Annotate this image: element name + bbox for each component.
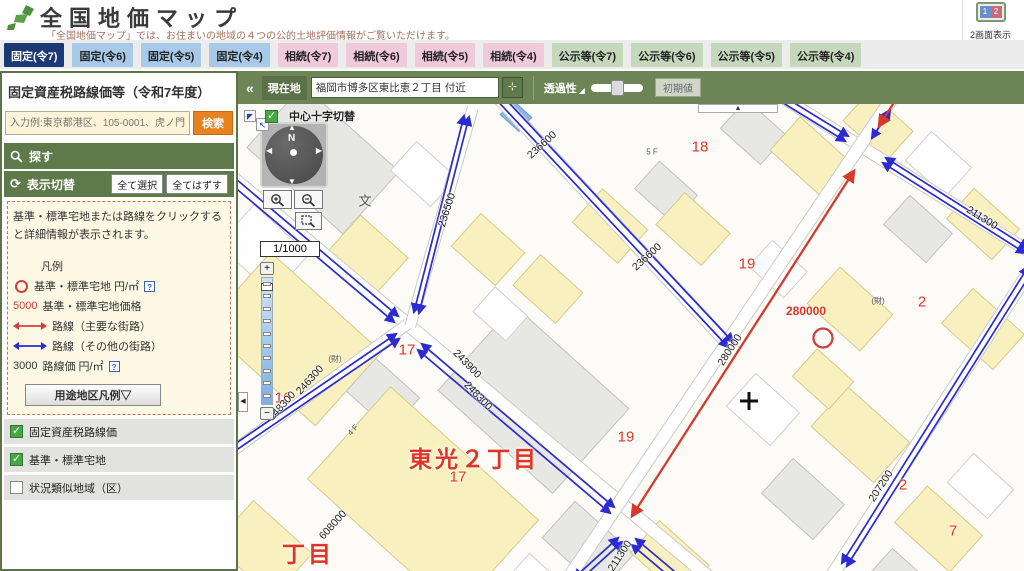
opacity-slider[interactable]	[591, 84, 643, 92]
district-number-label: 2	[918, 294, 926, 311]
opacity-reset-button[interactable]: 初期値	[655, 78, 701, 97]
current-location-label: 現在地	[262, 76, 307, 100]
toolbar-collapse-handle[interactable]: ▲	[698, 104, 778, 113]
layer-row: 固定資産税路線価	[4, 419, 234, 444]
dual-view-button[interactable]: 12 2画面表示	[962, 0, 1018, 40]
map-toolbar: « 現在地 ⊹ 透過性 ◢ 初期値	[238, 71, 1024, 104]
center-crosshair-label: 中心十字切替	[289, 108, 355, 124]
find-section-header[interactable]: 探す	[4, 143, 234, 169]
building-block	[946, 453, 1014, 520]
display-toggle-section-header: ⟳ 表示切替 全て選択 全てはずす	[4, 171, 234, 197]
legend-item: 路線（主要な街路）	[13, 318, 225, 334]
search-icon	[10, 150, 23, 163]
legend-title: 凡例	[41, 258, 225, 274]
district-number-label: 19	[739, 256, 756, 273]
tab-公示等(令4)[interactable]: 公示等(令4)	[790, 43, 861, 67]
zoom-in-button[interactable]	[263, 190, 292, 209]
standard-lot-marker	[814, 329, 833, 348]
opacity-triangle-icon: ◢	[579, 86, 585, 95]
zoom-slider-tick[interactable]	[263, 319, 271, 323]
tab-固定(令7)[interactable]: 固定(令7)	[4, 43, 64, 67]
toolbar-divider	[533, 76, 534, 100]
land-price-label: 280000	[786, 304, 826, 318]
tab-公示等(令7)[interactable]: 公示等(令7)	[552, 43, 623, 67]
tab-固定(令5)[interactable]: 固定(令5)	[141, 43, 201, 67]
poi-label: 5 F	[646, 148, 658, 157]
zoom-slider-track[interactable]	[261, 277, 273, 405]
tab-相続(令5)[interactable]: 相続(令5)	[415, 43, 475, 67]
layer-checkbox-固定資産税路線価[interactable]	[10, 425, 23, 438]
sidebar-panel: 固定資産税路線価等（令和7年度） 検索 探す ⟳ 表示切替 全て選択 全てはずす…	[0, 71, 238, 571]
zoom-slider-tick[interactable]	[263, 307, 271, 311]
layer-checkbox-基準・標準宅地[interactable]	[10, 453, 23, 466]
red-arrow-legend-icon	[13, 321, 47, 331]
usage-district-legend-button[interactable]: 用途地区凡例▽	[25, 384, 161, 406]
district-number-label: 2	[899, 477, 907, 494]
tab-固定(令4)[interactable]: 固定(令4)	[209, 43, 269, 67]
zoom-slider-tick[interactable]	[263, 369, 271, 373]
opacity-label: 透過性	[544, 80, 577, 96]
help-icon[interactable]: ?	[109, 361, 120, 372]
layer-row: 基準・標準宅地	[4, 447, 234, 472]
pan-nw-icon[interactable]: ◤	[244, 110, 256, 122]
tab-固定(令6)[interactable]: 固定(令6)	[72, 43, 132, 67]
dual-screen-icon: 12	[976, 2, 1006, 22]
area-name-label: 東光２丁目	[409, 440, 539, 474]
site-header: 全国地価マップ 「全国地価マップ」では、お住まいの地域の４つの公的土地評価情報が…	[0, 0, 1024, 40]
current-location-input[interactable]	[311, 77, 499, 98]
center-crosshair-checkbox[interactable]	[265, 110, 278, 123]
layer-checkbox-状況類似地域（区）[interactable]	[10, 481, 23, 494]
legend-item: 5000基準・標準宅地価格	[13, 298, 225, 314]
zoom-slider-tick[interactable]	[263, 332, 271, 336]
layer-row: 状況類似地域（区）	[4, 475, 234, 500]
zoom-slider-tick[interactable]	[263, 344, 271, 348]
legend-item: 基準・標準宅地 円/㎡?	[13, 278, 225, 294]
zoom-slider: + −	[260, 262, 274, 420]
help-icon[interactable]: ?	[144, 281, 155, 292]
tab-相続(令4)[interactable]: 相続(令4)	[483, 43, 543, 67]
pan-north-arrow[interactable]: ▲	[288, 123, 296, 132]
recenter-target-button[interactable]: ⊹	[502, 77, 523, 98]
refresh-icon: ⟳	[10, 176, 21, 192]
district-number-label: 18	[692, 139, 709, 156]
zoom-slider-plus-button[interactable]: +	[260, 262, 274, 275]
district-number-label: 7	[949, 523, 957, 540]
legend-box: 基準・標準宅地または路線をクリックすると詳細情報が表示されます。 凡例 基準・標…	[7, 201, 231, 415]
tab-相続(令6)[interactable]: 相続(令6)	[346, 43, 406, 67]
panel-collapse-handle[interactable]: ◀	[238, 392, 248, 412]
legend-item: 3000路線価 円/㎡?	[13, 358, 225, 374]
opacity-slider-thumb[interactable]	[611, 80, 624, 96]
building-block	[726, 372, 801, 446]
pan-east-arrow[interactable]: ▶	[316, 146, 322, 155]
district-number-label: 19	[618, 429, 635, 446]
zoom-slider-tick[interactable]	[263, 394, 271, 398]
tab-公示等(令5)[interactable]: 公示等(令5)	[711, 43, 782, 67]
area-zoom-button[interactable]	[295, 212, 322, 230]
compass-north-label: N	[288, 133, 295, 144]
poi-label: 文	[358, 191, 371, 210]
deselect-all-button[interactable]: 全てはずす	[166, 174, 228, 194]
poi-label: (財)	[328, 354, 341, 365]
building-block	[451, 212, 526, 286]
poi-label: (財)	[871, 296, 884, 307]
legend-instruction: 基準・標準宅地または路線をクリックすると詳細情報が表示されます。	[13, 208, 225, 244]
pan-west-arrow[interactable]: ◀	[266, 146, 272, 155]
zoom-slider-minus-button[interactable]: −	[260, 407, 274, 420]
zoom-slider-tick[interactable]	[263, 381, 271, 385]
area-name-label: 丁目	[282, 535, 334, 569]
pan-south-arrow[interactable]: ▼	[288, 177, 296, 186]
building-block	[502, 553, 570, 571]
zoom-slider-tick[interactable]	[263, 356, 271, 360]
panel-title: 固定資産税路線価等（令和7年度）	[2, 73, 236, 109]
zoom-slider-tick[interactable]	[263, 294, 271, 298]
legend-item: 路線（その他の街路）	[13, 338, 225, 354]
japan-map-logo-icon	[6, 3, 38, 33]
zoom-slider-tick[interactable]	[263, 282, 271, 286]
tab-相続(令7)[interactable]: 相続(令7)	[278, 43, 338, 67]
compass-control[interactable]: ▲ N ▼ ◀ ▶	[260, 122, 328, 188]
sidebar-collapse-button[interactable]: «	[246, 80, 254, 96]
tab-公示等(令6)[interactable]: 公示等(令6)	[631, 43, 702, 67]
map-canvas[interactable]: 1819191717162272800002366002366002365002…	[238, 104, 1024, 571]
search-button[interactable]: 検索	[193, 111, 233, 135]
district-number-label: 17	[399, 342, 416, 359]
blue-arrow-legend-icon	[13, 341, 47, 351]
standard-lot-legend-icon	[15, 280, 28, 293]
zoom-out-button[interactable]	[294, 190, 323, 209]
building-block	[761, 458, 845, 541]
map-scale-indicator: 1/1000	[260, 241, 320, 257]
address-search-input[interactable]	[5, 111, 190, 135]
select-all-button[interactable]: 全て選択	[111, 174, 163, 194]
year-tabbar: 固定(令7)固定(令6)固定(令5)固定(令4)相続(令7)相続(令6)相続(令…	[0, 40, 1024, 69]
compass-center-dot[interactable]	[290, 149, 297, 156]
